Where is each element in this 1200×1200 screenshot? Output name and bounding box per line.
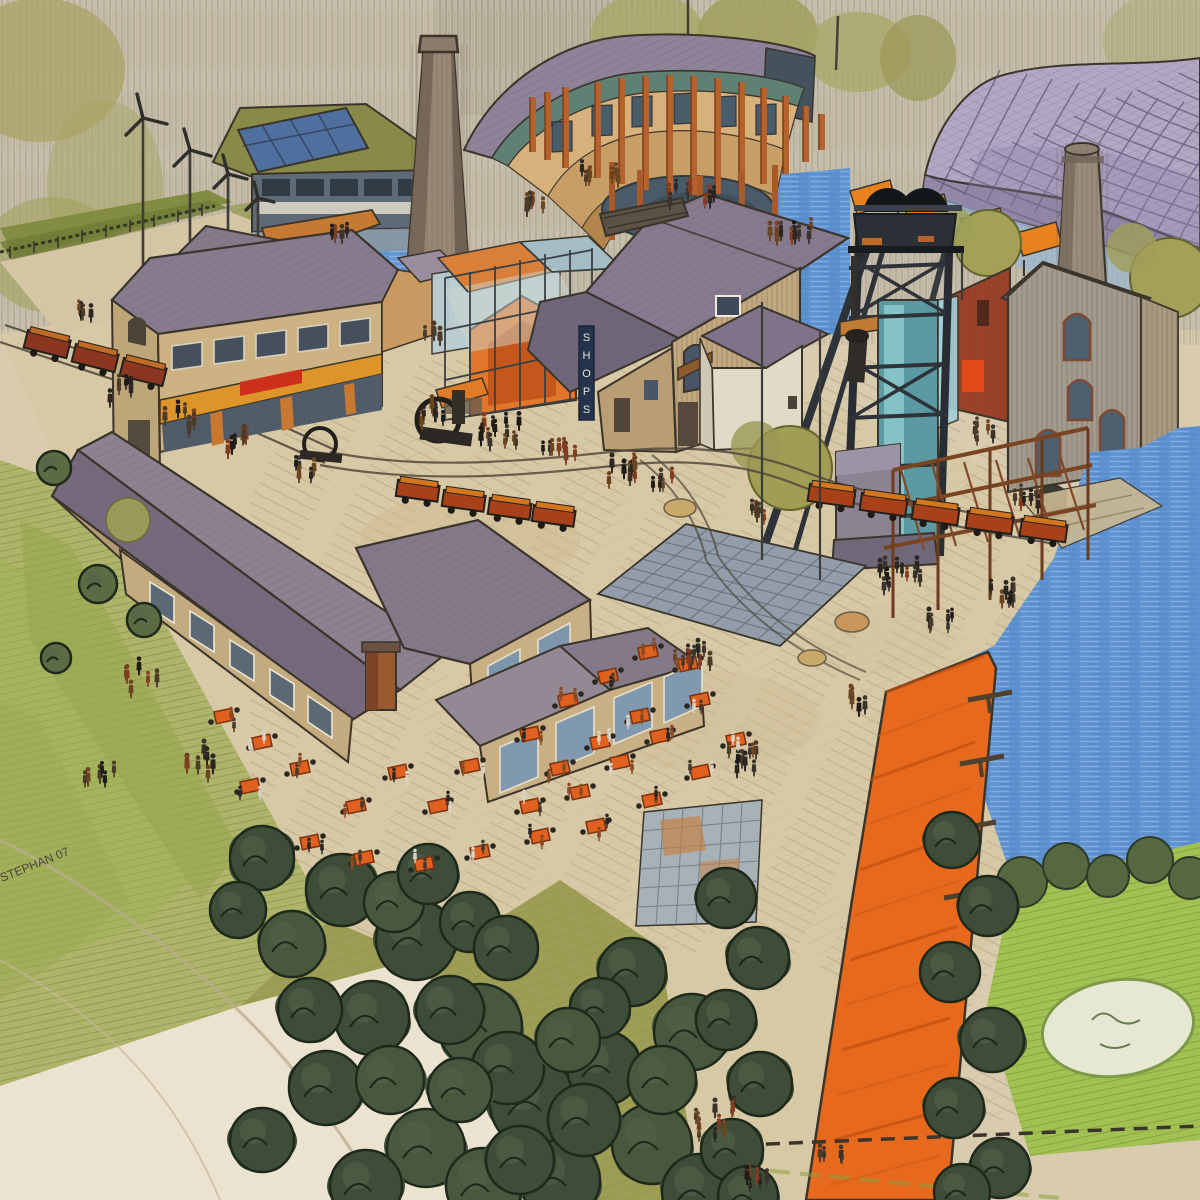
svg-text:S: S [583, 404, 590, 416]
svg-text:O: O [582, 368, 591, 380]
svg-text:P: P [583, 386, 590, 398]
svg-text:S: S [583, 332, 590, 344]
svg-text:H: H [583, 350, 591, 362]
